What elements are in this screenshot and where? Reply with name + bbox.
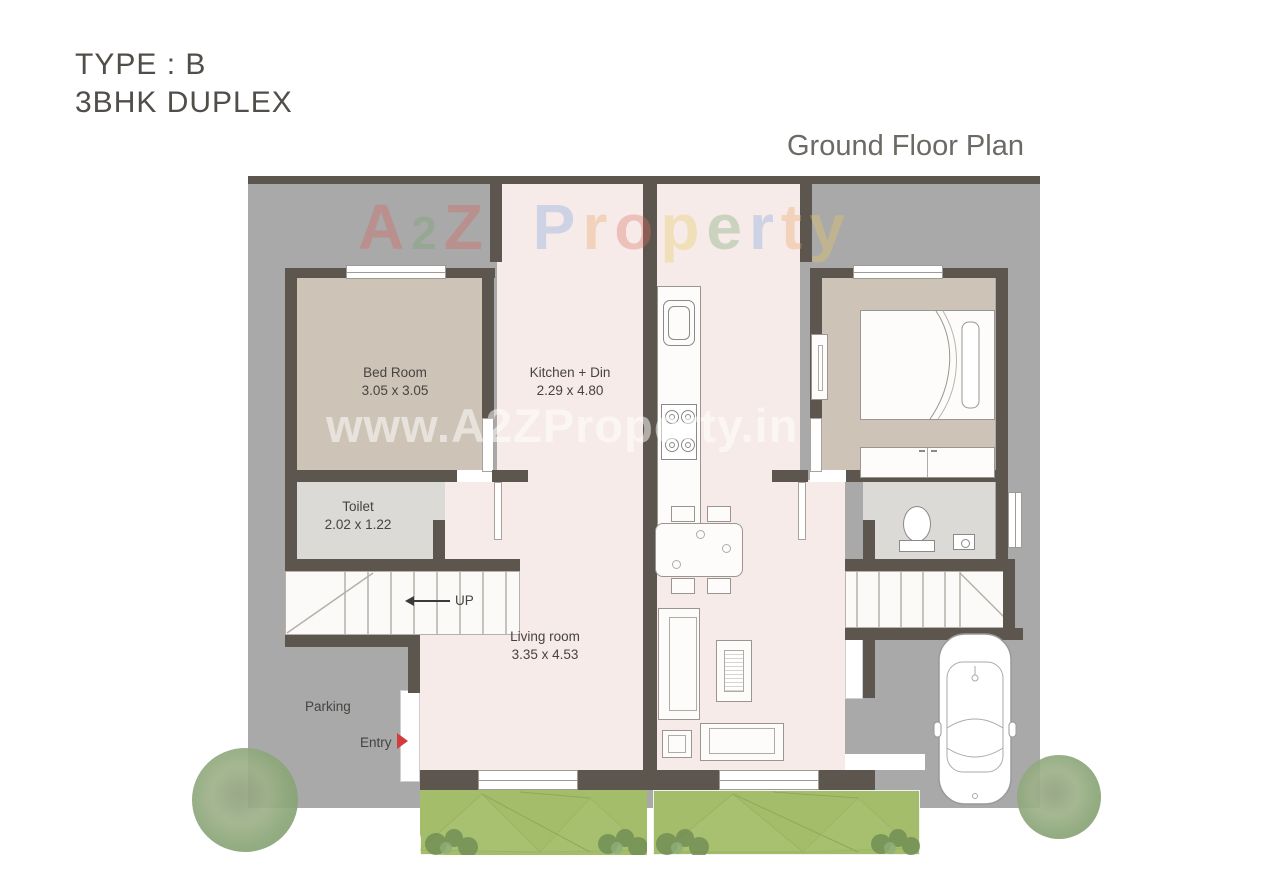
living-dims: 3.35 x 4.53 <box>475 646 615 664</box>
dining-chair <box>707 506 731 522</box>
dining-table <box>655 523 743 577</box>
watermark-letter <box>490 191 533 263</box>
wall-segment <box>248 176 1040 184</box>
dining-chair <box>671 506 695 522</box>
watermark-brand: A2Z Property <box>358 190 852 264</box>
wall-segment <box>863 640 875 698</box>
toilet-wc <box>903 506 931 542</box>
lawn-right <box>653 790 920 855</box>
washbasin <box>953 534 975 550</box>
lawn-left <box>420 790 647 855</box>
wall-segment <box>643 184 657 790</box>
watermark-letter: r <box>582 191 614 263</box>
living-name: Living room <box>475 628 615 646</box>
wall-segment <box>578 770 643 790</box>
left-staircase <box>285 571 520 635</box>
wall-segment <box>819 770 875 790</box>
wall-segment <box>408 635 420 693</box>
door-leaf <box>494 482 502 540</box>
kitchen-dims: 2.29 x 4.80 <box>500 382 640 400</box>
watermark-letter: e <box>706 191 749 263</box>
window <box>719 770 819 790</box>
bed <box>860 310 995 420</box>
window <box>346 265 446 279</box>
watermark-letter: o <box>614 191 660 263</box>
watermark-letter: 2 <box>411 207 444 259</box>
toilet-wc-tank <box>899 540 935 552</box>
bedside-table <box>811 334 828 400</box>
wall-segment <box>657 770 719 790</box>
plot-area: Bed Room 3.05 x 3.05 Kitchen + Din 2.29 … <box>248 176 1040 808</box>
bedroom-dims: 3.05 x 3.05 <box>325 382 465 400</box>
wall-segment <box>772 470 808 482</box>
window <box>853 265 943 279</box>
right-porch-step <box>845 754 925 770</box>
floor-plan-sheet: TYPE : B 3BHK DUPLEX Ground Floor Plan <box>0 0 1280 886</box>
entry-arrow-icon <box>397 733 408 749</box>
type-title: TYPE : B <box>75 48 206 82</box>
wall-segment <box>285 470 457 482</box>
watermark-url: www.A2ZProperty.in <box>326 398 798 453</box>
center-table <box>716 640 752 702</box>
tree <box>1017 755 1101 839</box>
wall-segment <box>285 559 520 571</box>
watermark-letter: r <box>749 191 781 263</box>
window <box>478 770 578 790</box>
window <box>1008 492 1022 548</box>
right-entry-door-strip <box>845 635 863 699</box>
side-table <box>662 730 692 758</box>
watermark-letter: t <box>781 191 809 263</box>
bedroom-name: Bed Room <box>325 364 465 382</box>
wall-segment <box>996 268 1008 565</box>
kitchen-label: Kitchen + Din 2.29 x 4.80 <box>500 364 640 400</box>
door-leaf <box>810 418 822 472</box>
wall-segment <box>492 470 528 482</box>
toilet-dims: 2.02 x 1.22 <box>288 516 428 534</box>
watermark-letter: p <box>660 191 706 263</box>
up-arrow-icon <box>414 600 450 602</box>
unit-title: 3BHK DUPLEX <box>75 86 293 120</box>
toilet-name: Toilet <box>288 498 428 516</box>
kitchen-name: Kitchen + Din <box>500 364 640 382</box>
watermark-letter: Z <box>444 191 490 263</box>
wall-segment <box>845 559 1008 571</box>
plan-title: Ground Floor Plan <box>787 130 1024 163</box>
watermark-letter: P <box>533 191 583 263</box>
wall-segment <box>1003 559 1015 640</box>
door-leaf <box>798 482 806 540</box>
watermark-letter: A <box>358 191 411 263</box>
dining-chair <box>671 578 695 594</box>
toilet-label: Toilet 2.02 x 1.22 <box>288 498 428 534</box>
up-label: UP <box>455 592 474 610</box>
sofa-bottom <box>700 723 784 761</box>
entry-label: Entry <box>360 734 392 752</box>
living-label: Living room 3.35 x 4.53 <box>475 628 615 664</box>
wardrobe <box>860 447 995 478</box>
right-staircase <box>845 571 1015 628</box>
wall-segment <box>285 635 420 647</box>
car <box>933 630 1017 808</box>
tree <box>192 748 298 852</box>
wall-segment <box>420 770 478 790</box>
kitchen-sink <box>663 300 695 346</box>
bedroom-label: Bed Room 3.05 x 3.05 <box>325 364 465 400</box>
watermark-letter: y <box>809 191 852 263</box>
dining-chair <box>707 578 731 594</box>
sofa-long <box>658 608 700 720</box>
parking-label: Parking <box>305 698 351 716</box>
